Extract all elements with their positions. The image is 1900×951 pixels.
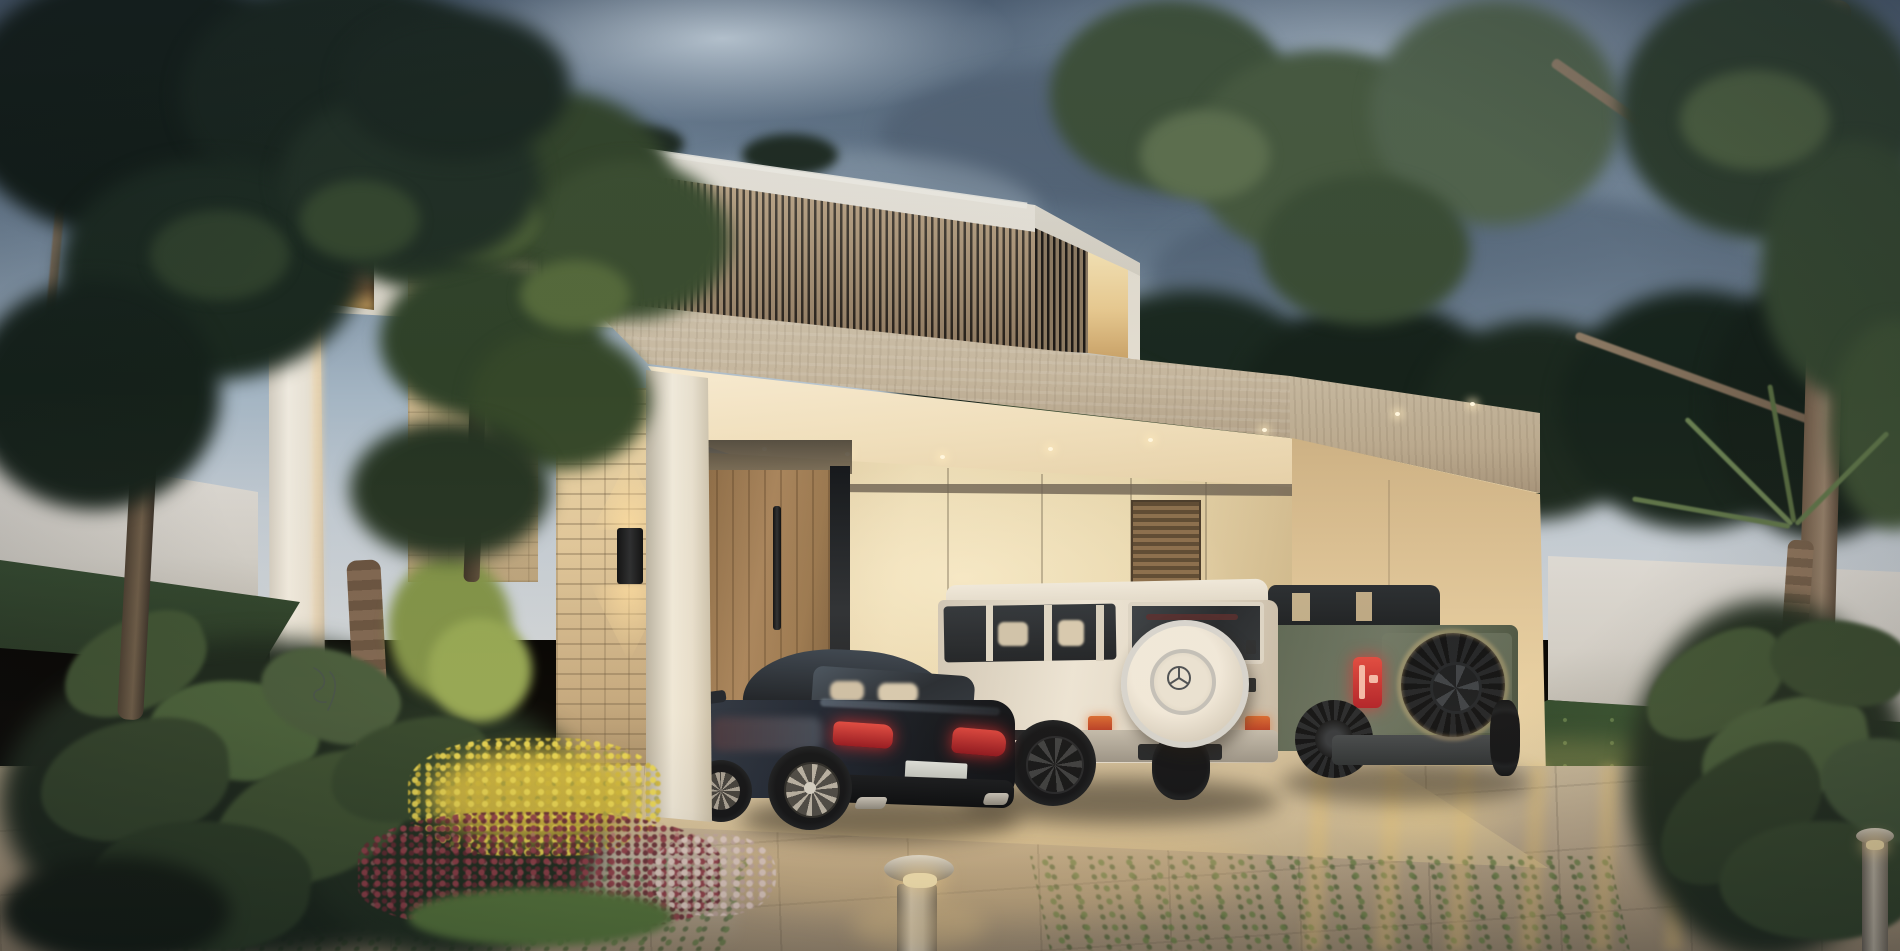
- tree-canopy-mid-highlight: [520, 260, 630, 330]
- suv-white-brake-strip: [1146, 614, 1238, 620]
- suv-white-window-pillar: [1044, 605, 1052, 661]
- grass-strip: [408, 888, 672, 946]
- door-header-shadow: [688, 440, 852, 474]
- recessed-downlight: [1148, 438, 1153, 442]
- suv-green-bumper: [1332, 735, 1514, 765]
- sedan: [700, 645, 1015, 835]
- sedan-rim-cap: [804, 782, 816, 794]
- scene-architectural-rendering: [0, 0, 1900, 951]
- suv-white-seat-hint: [1058, 620, 1084, 646]
- door-pull-handle: [773, 506, 781, 630]
- suv-green-taillight: [1353, 657, 1382, 708]
- sedan-taillight-left: [832, 721, 894, 749]
- house-corner-edge: [1128, 270, 1140, 362]
- bollard-glow-band: [903, 873, 937, 888]
- suv-white-window-pillar: [1096, 605, 1104, 661]
- suv-green-far-wheel: [1490, 700, 1520, 776]
- sedan-interior-seats: [830, 681, 864, 701]
- tree-canopy-mid: [350, 420, 550, 560]
- suv-green-taillight-detail: [1369, 675, 1378, 683]
- tree-canopy-left: [340, 10, 570, 160]
- sedan-exhaust-left: [854, 797, 888, 809]
- bollard-small-glow: [1866, 840, 1884, 850]
- suv-white-rear-rim: [1026, 736, 1084, 794]
- mercedes-star-emblem: [1166, 665, 1192, 691]
- recessed-downlight: [1395, 412, 1400, 416]
- tree-canopy-farright-highlight: [1680, 70, 1830, 170]
- sedan-taillight-right: [951, 727, 1007, 758]
- suv-green-taillight-detail: [1359, 665, 1365, 699]
- recessed-downlight: [940, 455, 945, 459]
- carport-column: [646, 370, 712, 822]
- tree-canopy-right: [1260, 175, 1470, 325]
- sedan-exhaust-right: [982, 793, 1009, 805]
- suv-green: [1262, 583, 1518, 795]
- recessed-downlight: [1470, 402, 1475, 406]
- bollard-ground-glow: [852, 902, 986, 951]
- tree-canopy-right-highlight: [1140, 110, 1270, 200]
- suv-white-seat-hint: [998, 622, 1028, 646]
- suv-white-hinge: [1246, 640, 1256, 654]
- lit-terrace-niche: [1088, 252, 1128, 358]
- tree-canopy-left-highlight: [300, 180, 420, 260]
- tree-canopy-left-highlight: [150, 210, 290, 300]
- suv-green-cage-gap: [1356, 592, 1372, 621]
- white-flower-cluster: [652, 834, 776, 916]
- watermark-signature: [306, 664, 342, 716]
- fern-highlight: [428, 618, 532, 722]
- louver-vent-panel: [1131, 500, 1201, 588]
- wall-sconce: [617, 528, 643, 584]
- bollard-light-small: [1862, 838, 1888, 951]
- suv-green-cage-gap: [1292, 593, 1310, 621]
- recessed-downlight: [1048, 447, 1053, 451]
- recessed-downlight: [1262, 428, 1267, 432]
